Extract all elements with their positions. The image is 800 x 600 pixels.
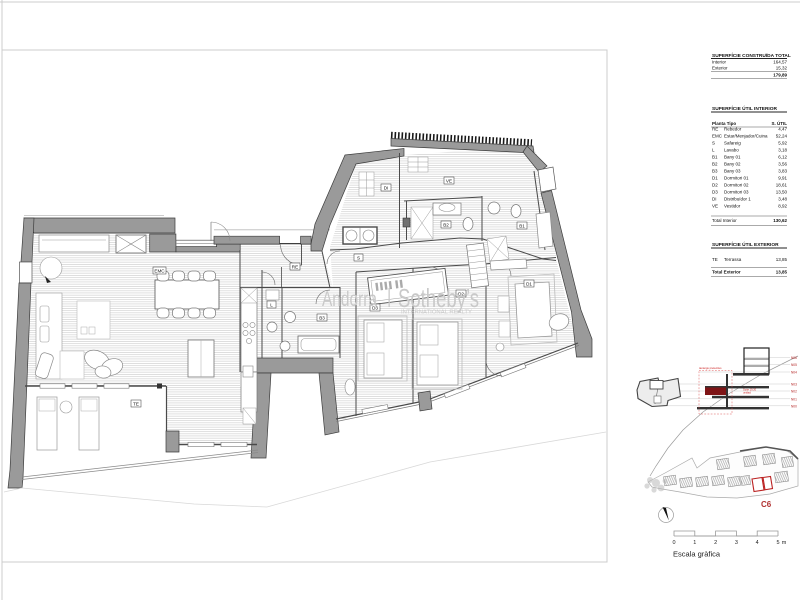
svg-text:B1: B1	[519, 223, 525, 228]
svg-text:179,89: 179,89	[773, 73, 787, 78]
svg-text:Andorra: Andorra	[322, 288, 377, 311]
svg-text:B2: B2	[443, 222, 449, 227]
svg-text:13,50: 13,50	[776, 190, 788, 195]
svg-text:Planta Tipo: Planta Tipo	[712, 121, 736, 126]
svg-text:N04: N04	[791, 371, 797, 375]
svg-text:4: 4	[756, 540, 759, 546]
svg-text:9,91: 9,91	[778, 176, 787, 181]
svg-text:DI: DI	[384, 185, 389, 190]
svg-text:3,83: 3,83	[778, 169, 787, 174]
svg-text:Rebedor: Rebedor	[724, 127, 742, 132]
svg-text:Dormitori 01: Dormitori 01	[724, 176, 749, 181]
svg-text:3,56: 3,56	[778, 162, 787, 167]
svg-text:3: 3	[735, 540, 738, 546]
svg-text:15,32: 15,32	[776, 66, 788, 71]
svg-text:18,61: 18,61	[776, 183, 788, 188]
svg-text:INTERNATIONAL REALTY: INTERNATIONAL REALTY	[401, 310, 472, 316]
svg-text:D1: D1	[526, 281, 532, 286]
svg-text:Vestidor: Vestidor	[724, 204, 741, 209]
svg-text:Total Exterior: Total Exterior	[712, 270, 741, 275]
svg-text:Bany 01: Bany 01	[724, 155, 741, 160]
svg-text:N03: N03	[791, 383, 797, 387]
svg-text:Bany 02: Bany 02	[724, 162, 741, 167]
svg-text:VE: VE	[712, 204, 718, 209]
svg-text:EMC: EMC	[712, 134, 723, 139]
svg-text:B1: B1	[712, 155, 718, 160]
svg-text:TE: TE	[133, 401, 139, 406]
svg-text:Estar/Menjador/Cuina: Estar/Menjador/Cuina	[724, 134, 768, 139]
svg-text:8,92: 8,92	[778, 204, 787, 209]
svg-text:164,57: 164,57	[773, 60, 787, 65]
svg-text:EMC: EMC	[154, 268, 165, 273]
svg-text:0: 0	[672, 540, 675, 546]
svg-text:D1: D1	[712, 176, 718, 181]
svg-text:6,12: 6,12	[778, 155, 787, 160]
svg-text:S. ÚTIL: S. ÚTIL	[772, 120, 788, 126]
svg-text:D3: D3	[712, 190, 718, 195]
svg-text:Total Interior: Total Interior	[712, 218, 737, 223]
svg-text:L: L	[270, 302, 273, 307]
svg-text:13,85: 13,85	[776, 257, 788, 262]
svg-text:5: 5	[776, 540, 779, 546]
svg-text:B2: B2	[712, 162, 718, 167]
svg-text:RE: RE	[712, 127, 718, 132]
svg-text:Sotheby’s: Sotheby’s	[398, 283, 479, 313]
svg-text:N06: N06	[791, 356, 797, 360]
svg-text:unidad: unidad	[743, 391, 751, 395]
svg-text:Escala gràfica: Escala gràfica	[673, 550, 721, 559]
svg-text:B3: B3	[319, 315, 325, 320]
svg-text:1: 1	[693, 540, 696, 546]
svg-text:TE: TE	[712, 257, 718, 262]
svg-text:N01: N01	[791, 397, 797, 401]
svg-text:13,85: 13,85	[776, 270, 788, 275]
svg-text:N05: N05	[791, 363, 797, 367]
svg-text:2: 2	[714, 540, 717, 546]
svg-text:N02: N02	[791, 390, 797, 394]
svg-text:tanteigs prelectius: tanteigs prelectius	[699, 366, 722, 370]
svg-text:Dormitori 02: Dormitori 02	[724, 183, 749, 188]
svg-text:4,47: 4,47	[778, 127, 787, 132]
svg-text:C6: C6	[761, 500, 772, 509]
svg-text:RE: RE	[292, 264, 298, 269]
svg-text:S: S	[712, 141, 715, 146]
svg-text:D2: D2	[712, 183, 718, 188]
svg-text:Terrassa: Terrassa	[724, 257, 742, 262]
svg-text:B3: B3	[712, 169, 718, 174]
svg-text:52,24: 52,24	[776, 134, 788, 139]
svg-text:Interior: Interior	[712, 60, 727, 65]
svg-text:N00: N00	[791, 404, 797, 408]
svg-text:S: S	[357, 255, 360, 260]
svg-text:m: m	[782, 540, 787, 546]
svg-text:VE: VE	[446, 178, 452, 183]
svg-text:Exterior: Exterior	[712, 66, 728, 71]
svg-text:Dormitori 03: Dormitori 03	[724, 190, 749, 195]
svg-text:3,48: 3,48	[778, 197, 787, 202]
svg-text:Bany 03: Bany 03	[724, 169, 741, 174]
svg-text:130,62: 130,62	[773, 218, 787, 223]
svg-text:DI: DI	[712, 197, 717, 202]
svg-text:Safareig: Safareig	[724, 141, 741, 146]
svg-text:3,18: 3,18	[778, 148, 787, 153]
svg-text:Lavabo: Lavabo	[724, 148, 739, 153]
svg-text:5,92: 5,92	[778, 141, 787, 146]
svg-text:Distribuïdor 1: Distribuïdor 1	[724, 197, 751, 202]
